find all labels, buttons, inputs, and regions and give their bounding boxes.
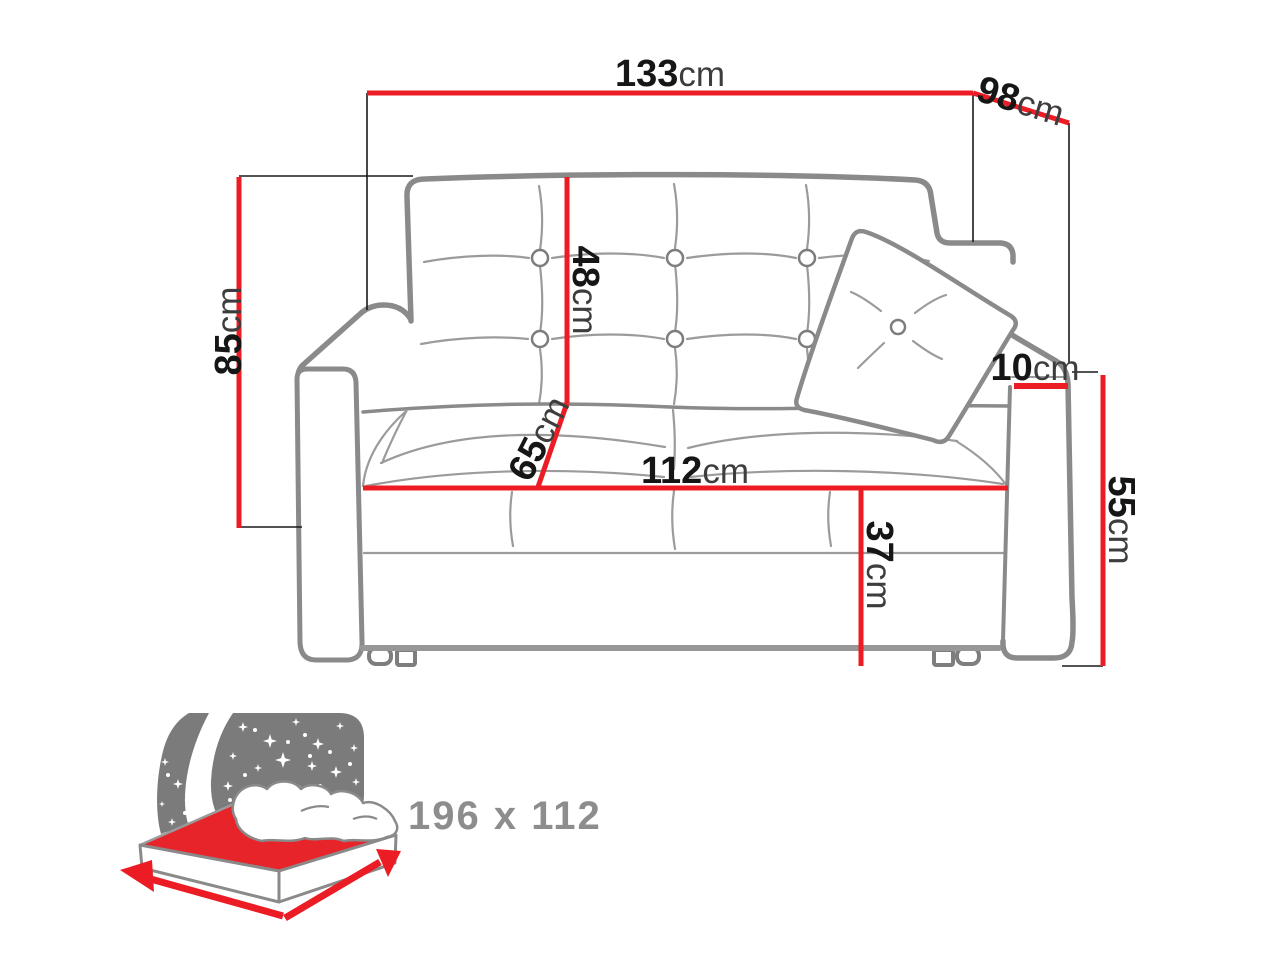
button-icon [667, 331, 683, 347]
diagram-page: 133cm 98cm 85cm 48cm 65cm 112cm 37cm 10c… [0, 0, 1280, 960]
dim-label-overall-depth: 98cm [972, 68, 1069, 134]
dim-label-seat-height: 37cm [858, 521, 900, 610]
button-icon [532, 331, 548, 347]
sleep-function-icon: 196 x 112 [120, 713, 602, 918]
button-icon [799, 250, 815, 266]
button-icon [667, 250, 683, 266]
pillow [796, 231, 1016, 442]
dim-label-backrest-height: 48cm [564, 246, 606, 335]
left-armrest-slope [298, 305, 410, 377]
moon-swoosh-wedge [157, 713, 209, 834]
width-arrowhead-icon [120, 860, 154, 892]
sleeping-area-label: 196 x 112 [408, 794, 602, 838]
front-panel-creases [364, 491, 1003, 553]
sofa [297, 175, 1073, 665]
left-armrest [297, 369, 362, 660]
dim-label-overall-height: 85cm [208, 287, 250, 376]
sofa-dimension-diagram: 133cm 98cm 85cm 48cm 65cm 112cm 37cm 10c… [0, 0, 1280, 960]
dim-label-armrest-width: 10cm [991, 347, 1080, 389]
pillow-button-icon [891, 320, 905, 334]
right-armrest-face [1003, 361, 1073, 658]
dim-label-armrest-height: 55cm [1100, 476, 1142, 565]
sofa-leg [934, 650, 953, 665]
dim-label-seat-width: 112cm [641, 450, 749, 492]
sofa-leg [397, 650, 415, 665]
button-icon [532, 250, 548, 266]
pillow-outline [796, 231, 1016, 442]
dim-label-overall-width: 133cm [615, 53, 725, 95]
blanket [233, 782, 397, 842]
